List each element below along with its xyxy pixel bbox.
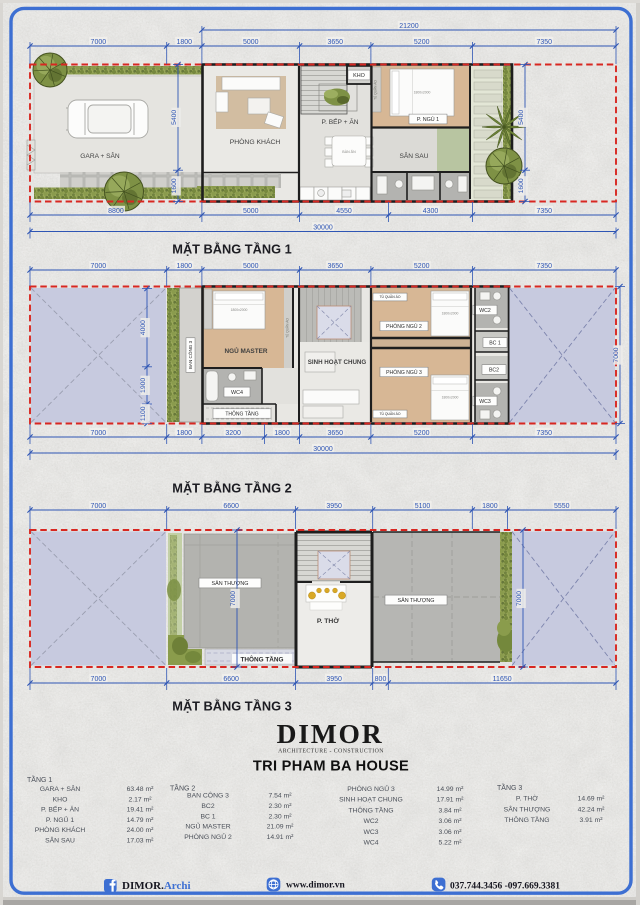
svg-text:3650: 3650	[327, 263, 343, 270]
svg-text:5000: 5000	[243, 263, 259, 270]
svg-text:7000: 7000	[91, 503, 107, 510]
svg-text:2.17 m²: 2.17 m²	[128, 796, 152, 803]
svg-text:1800x2000: 1800x2000	[442, 396, 459, 400]
svg-text:PHÒNG KHÁCH: PHÒNG KHÁCH	[35, 825, 86, 834]
svg-text:PHÒNG NGỦ 2: PHÒNG NGỦ 2	[386, 323, 422, 330]
svg-text:5550: 5550	[554, 503, 570, 510]
svg-text:14.91 m²: 14.91 m²	[267, 834, 295, 841]
svg-text:1800x2000: 1800x2000	[231, 308, 248, 312]
svg-text:PHÒNG NGỦ 3: PHÒNG NGỦ 3	[386, 369, 422, 376]
svg-text:3.06 m²: 3.06 m²	[438, 829, 462, 836]
svg-text:THÔNG TẦNG: THÔNG TẦNG	[225, 410, 258, 417]
svg-text:TỦ QUẦN ÁO: TỦ QUẦN ÁO	[379, 294, 400, 299]
svg-text:SÂN THƯỢNG: SÂN THƯỢNG	[504, 804, 551, 813]
svg-text:7.54 m²: 7.54 m²	[268, 793, 292, 800]
svg-text:SINH HOẠT CHUNG: SINH HOẠT CHUNG	[308, 359, 367, 366]
svg-text:7000: 7000	[613, 347, 620, 362]
svg-text:17.91 m²: 17.91 m²	[437, 797, 465, 804]
svg-text:MẶT BẰNG TẦNG 3: MẶT BẰNG TẦNG 3	[172, 699, 291, 714]
svg-text:WC2: WC2	[363, 818, 378, 825]
svg-text:7000: 7000	[91, 676, 107, 683]
svg-text:1800: 1800	[177, 263, 193, 270]
svg-text:5000: 5000	[243, 208, 259, 215]
svg-text:NGỦ MASTER: NGỦ MASTER	[185, 822, 230, 831]
svg-text:1800: 1800	[482, 503, 498, 510]
svg-text:MẶT BẰNG TẦNG 2: MẶT BẰNG TẦNG 2	[172, 481, 291, 496]
svg-text:3950: 3950	[326, 676, 342, 683]
svg-text:1900: 1900	[140, 378, 147, 393]
svg-text:24.00 m²: 24.00 m²	[127, 827, 155, 834]
svg-text:17.03 m²: 17.03 m²	[127, 838, 155, 845]
svg-text:BC2: BC2	[201, 803, 214, 810]
svg-text:www.dimor.vn: www.dimor.vn	[286, 880, 345, 890]
svg-text:7000: 7000	[91, 430, 107, 437]
svg-text:2.30 m²: 2.30 m²	[268, 803, 292, 810]
svg-text:5400: 5400	[171, 110, 178, 125]
svg-text:5400: 5400	[518, 110, 525, 125]
svg-text:7350: 7350	[536, 430, 552, 437]
svg-text:4000: 4000	[140, 320, 147, 335]
svg-text:P. NGỦ 1: P. NGỦ 1	[46, 815, 74, 824]
svg-text:SÂN SAU: SÂN SAU	[400, 151, 429, 160]
svg-text:1800: 1800	[177, 430, 193, 437]
svg-text:WC3: WC3	[479, 399, 491, 405]
svg-text:SINH HOẠT CHUNG: SINH HOẠT CHUNG	[339, 797, 403, 804]
svg-text:42.24 m²: 42.24 m²	[578, 806, 606, 813]
svg-text:TỦ QUẦN ÁO: TỦ QUẦN ÁO	[285, 318, 290, 338]
svg-text:SÂN THƯỢNG: SÂN THƯỢNG	[398, 597, 435, 604]
svg-text:SÂN SAU: SÂN SAU	[45, 836, 75, 845]
svg-text:1800x2000: 1800x2000	[442, 312, 459, 316]
svg-text:7350: 7350	[536, 39, 552, 46]
svg-text:63.48 m²: 63.48 m²	[127, 786, 155, 793]
svg-text:21.09 m²: 21.09 m²	[267, 824, 295, 831]
svg-text:5200: 5200	[414, 430, 430, 437]
svg-text:KHO: KHO	[353, 73, 365, 79]
svg-text:NGỦ MASTER: NGỦ MASTER	[225, 346, 268, 355]
svg-text:19.41 m²: 19.41 m²	[127, 807, 155, 814]
svg-text:1600: 1600	[518, 178, 525, 193]
svg-text:21200: 21200	[399, 23, 419, 30]
svg-text:BÀN ĂN: BÀN ĂN	[342, 150, 356, 154]
svg-text:5200: 5200	[414, 263, 430, 270]
svg-text:5.22 m²: 5.22 m²	[438, 840, 462, 847]
svg-text:WC3: WC3	[363, 829, 378, 836]
svg-text:8800: 8800	[108, 208, 124, 215]
svg-text:7000: 7000	[91, 263, 107, 270]
svg-text:TRI PHAM BA HOUSE: TRI PHAM BA HOUSE	[253, 759, 409, 775]
svg-text:WC4: WC4	[231, 390, 243, 396]
svg-text:P. NGỦ 1: P. NGỦ 1	[417, 116, 439, 123]
svg-text:7000: 7000	[230, 591, 237, 606]
svg-text:ARCHITECTURE - CONSTRUCTION: ARCHITECTURE - CONSTRUCTION	[278, 749, 384, 755]
svg-text:4550: 4550	[336, 208, 352, 215]
svg-text:3.84 m²: 3.84 m²	[438, 807, 462, 814]
svg-text:5200: 5200	[414, 39, 430, 46]
svg-text:7000: 7000	[516, 591, 523, 606]
svg-text:PHÒNG NGỦ 2: PHÒNG NGỦ 2	[184, 832, 232, 841]
svg-text:14.79 m²: 14.79 m²	[127, 817, 155, 824]
svg-text:3650: 3650	[327, 39, 343, 46]
svg-text:14.99 m²: 14.99 m²	[437, 786, 465, 793]
svg-text:WC2: WC2	[479, 308, 491, 314]
svg-text:TỦ QUẦN ÁO: TỦ QUẦN ÁO	[379, 411, 400, 416]
svg-text:6600: 6600	[223, 676, 239, 683]
svg-text:7000: 7000	[91, 39, 107, 46]
svg-text:3.06 m²: 3.06 m²	[438, 818, 462, 825]
svg-text:3950: 3950	[326, 503, 342, 510]
svg-text:DIMOR.Archi: DIMOR.Archi	[122, 880, 191, 892]
svg-text:5100: 5100	[415, 503, 431, 510]
svg-text:2.30 m²: 2.30 m²	[268, 813, 292, 820]
svg-text:3650: 3650	[327, 430, 343, 437]
svg-text:WC4: WC4	[363, 840, 378, 847]
svg-text:6600: 6600	[223, 503, 239, 510]
svg-text:037.744.3456 -097.669.3381: 037.744.3456 -097.669.3381	[450, 882, 560, 892]
svg-text:KHO: KHO	[53, 796, 68, 803]
svg-text:4300: 4300	[423, 208, 439, 215]
svg-text:P. THỜ: P. THỜ	[516, 794, 538, 803]
svg-text:DIMOR: DIMOR	[277, 718, 384, 749]
svg-text:30000: 30000	[313, 446, 333, 453]
svg-text:BC2: BC2	[489, 367, 499, 373]
svg-text:11650: 11650	[493, 676, 512, 683]
svg-text:5000: 5000	[243, 39, 259, 46]
svg-text:P. THỜ: P. THỜ	[317, 616, 339, 625]
svg-text:1800x2000: 1800x2000	[414, 91, 431, 95]
svg-text:GARA + SÂN: GARA + SÂN	[40, 784, 81, 793]
svg-text:BC 1: BC 1	[200, 813, 215, 820]
svg-text:30000: 30000	[313, 224, 333, 231]
svg-text:1600: 1600	[171, 178, 178, 193]
svg-text:800: 800	[375, 676, 387, 683]
svg-text:PHÒNG KHÁCH: PHÒNG KHÁCH	[230, 137, 281, 146]
svg-text:SÂN THƯỢNG: SÂN THƯỢNG	[212, 580, 249, 587]
svg-text:1800: 1800	[274, 430, 290, 437]
svg-text:BAN CÔNG 3: BAN CÔNG 3	[187, 340, 193, 369]
svg-text:3.91 m²: 3.91 m²	[579, 817, 603, 824]
svg-text:1100: 1100	[140, 406, 147, 421]
svg-text:BAN CÔNG 3: BAN CÔNG 3	[187, 791, 229, 800]
svg-text:TỦ QUẦN ÁO: TỦ QUẦN ÁO	[373, 80, 378, 100]
svg-text:14.69 m²: 14.69 m²	[578, 796, 606, 803]
svg-text:PHÒNG NGỦ 3: PHÒNG NGỦ 3	[347, 784, 395, 793]
svg-text:GARA + SÂN: GARA + SÂN	[80, 151, 120, 160]
svg-text:MẶT BẰNG TẦNG 1: MẶT BẰNG TẦNG 1	[172, 242, 291, 257]
svg-text:BC 1: BC 1	[489, 340, 501, 346]
svg-text:3200: 3200	[225, 430, 241, 437]
svg-text:7350: 7350	[536, 208, 552, 215]
svg-text:1800: 1800	[177, 39, 193, 46]
svg-text:7350: 7350	[536, 263, 552, 270]
